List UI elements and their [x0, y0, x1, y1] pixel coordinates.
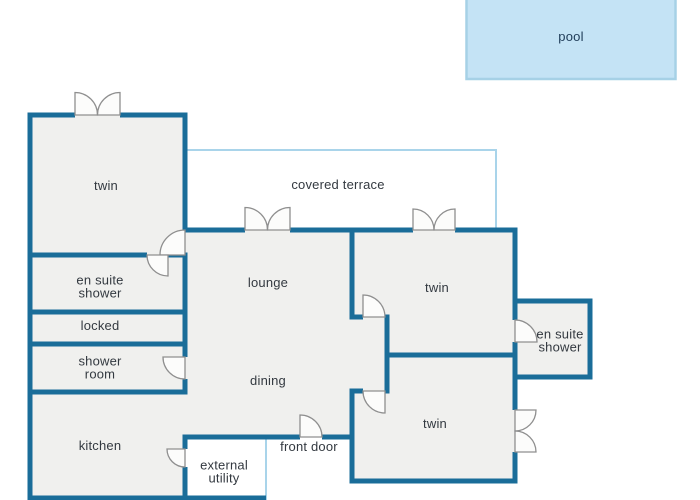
french-door-icon	[434, 209, 455, 230]
floor-plan-drawing	[0, 0, 700, 500]
en-suite-shower-right-label: en suite shower	[536, 329, 583, 354]
twin-top-left-label: twin	[94, 180, 118, 193]
french-door-icon	[515, 410, 536, 431]
dining-label: dining	[250, 375, 286, 388]
label-line: shower	[536, 341, 583, 354]
french-door-icon	[515, 431, 536, 452]
locked-label: locked	[81, 320, 120, 333]
floor-plan: pool covered terrace twin en suite showe…	[0, 0, 700, 500]
french-door-icon	[245, 208, 268, 231]
front-door-label: front door	[280, 441, 338, 454]
external-utility-label: external utility	[200, 460, 248, 485]
french-door-icon	[413, 209, 434, 230]
french-door-icon	[75, 93, 98, 116]
shower-room-label: shower room	[78, 356, 121, 381]
kitchen-label: kitchen	[79, 440, 122, 453]
pool-label: pool	[558, 31, 583, 44]
label-line: shower	[76, 287, 123, 300]
lounge-label: lounge	[248, 277, 288, 290]
twin-right-top-label: twin	[425, 282, 449, 295]
french-door-icon	[268, 208, 291, 231]
french-door-icon	[98, 93, 121, 116]
covered-terrace-label: covered terrace	[291, 179, 384, 192]
room-lounge-dining-area	[185, 230, 352, 437]
label-line: room	[78, 368, 121, 381]
twin-right-bottom-label: twin	[423, 418, 447, 431]
en-suite-shower-left-label: en suite shower	[76, 275, 123, 300]
label-line: utility	[200, 472, 248, 485]
